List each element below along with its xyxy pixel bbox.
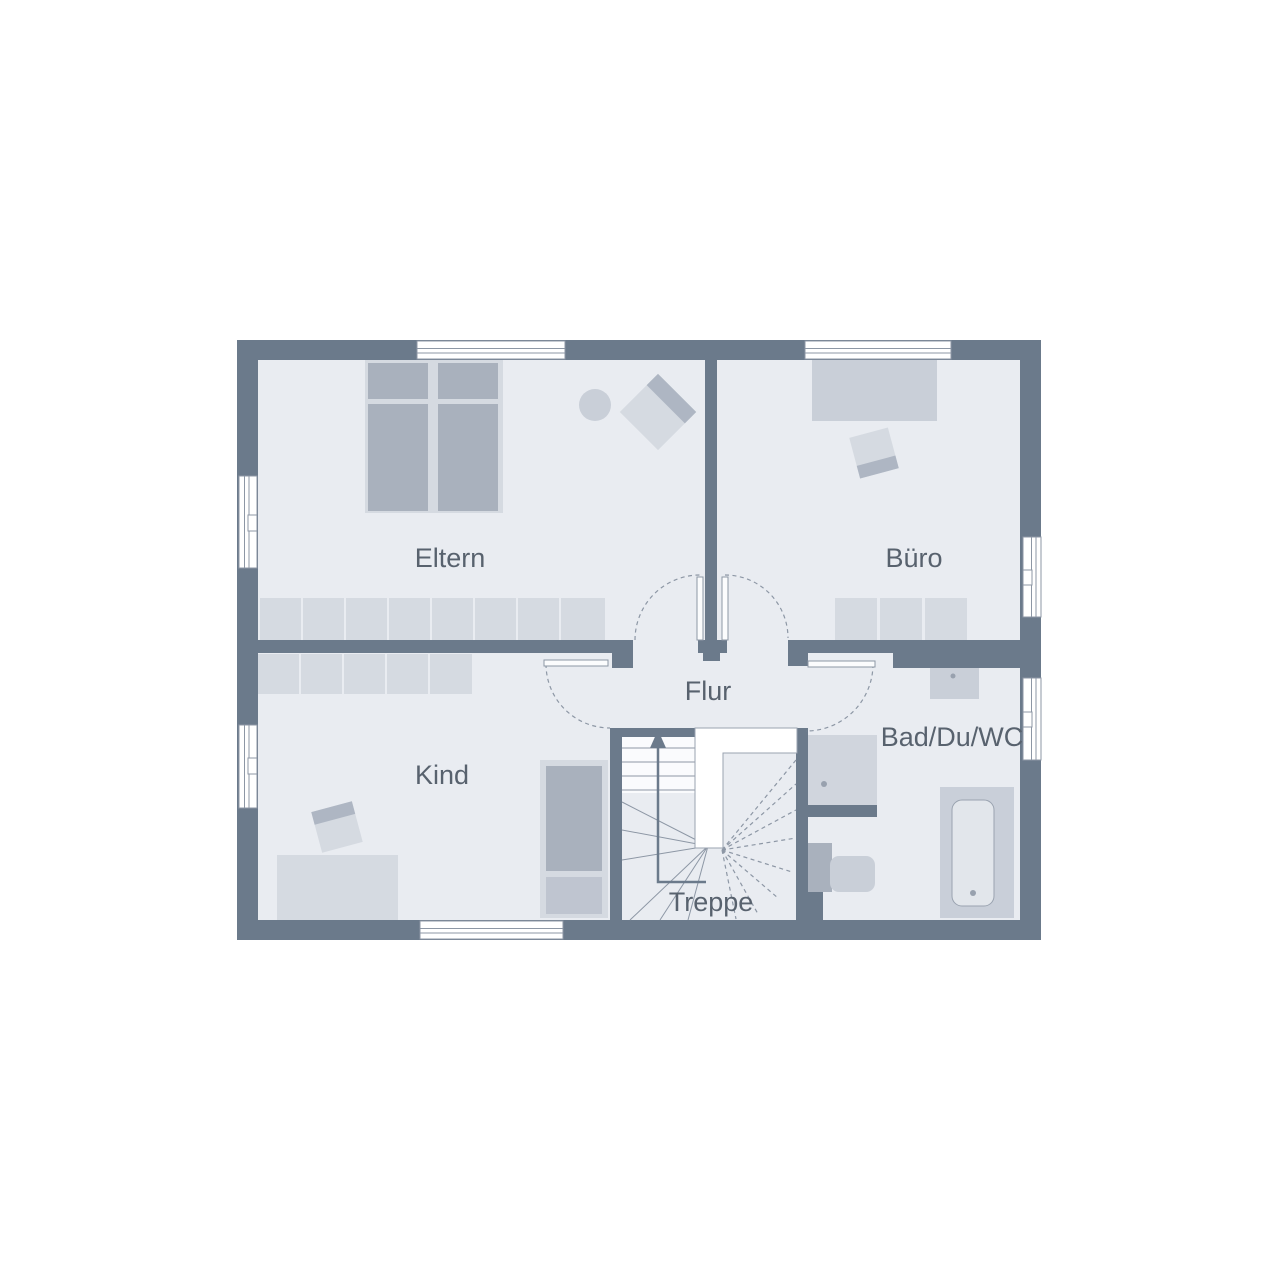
washbasin-drain — [951, 674, 956, 679]
window-top-buero — [805, 341, 951, 359]
shower — [808, 735, 877, 805]
shower-drain — [821, 781, 827, 787]
door-jamb-bad — [788, 653, 808, 666]
bed-mattress — [546, 766, 602, 871]
wardrobe-cell — [303, 598, 344, 640]
floor-plan: Eltern Büro Kind Flur Bad/Du/WC Treppe — [0, 0, 1280, 1280]
wall-shower-stub — [808, 805, 877, 817]
wall-eltern-kind — [258, 640, 633, 653]
washbasin — [930, 668, 979, 699]
wardrobe-cell — [430, 654, 472, 694]
wall-foot-tab — [703, 653, 720, 661]
window-glass — [805, 341, 951, 359]
stair-right-stub — [796, 892, 823, 920]
bed-mattress-right — [438, 404, 498, 511]
sideboard-buero — [835, 598, 967, 640]
shower-tray — [808, 735, 877, 805]
wardrobe-cell — [518, 598, 559, 640]
room-label-treppe: Treppe — [669, 887, 754, 917]
desk-buero — [812, 360, 937, 421]
bathtub — [940, 787, 1014, 918]
toilet-cistern — [808, 843, 832, 892]
window-top-eltern — [417, 341, 565, 359]
door-leaf-bad — [808, 661, 875, 667]
door-leaf-buero — [722, 577, 728, 640]
window-handle — [248, 758, 257, 774]
room-label-buero: Büro — [885, 543, 942, 573]
bathtub-drain — [970, 890, 976, 896]
bed-pillow-left — [368, 363, 428, 399]
wall-bad-thick — [893, 653, 1020, 668]
window-left-eltern — [239, 476, 257, 568]
wall-buero-bad — [788, 640, 1020, 653]
bed-kind — [540, 760, 608, 918]
door-leaf-eltern — [697, 577, 703, 640]
window-left-kind — [239, 725, 257, 808]
bed-mattress-left — [368, 404, 428, 511]
washbasin-body — [930, 668, 979, 699]
side-table — [579, 389, 611, 421]
wardrobe-cell — [258, 654, 299, 694]
stair-left-wall — [610, 728, 622, 920]
sideboard-cell — [835, 598, 877, 640]
room-label-kind: Kind — [415, 760, 469, 790]
wardrobe-kind — [258, 654, 472, 694]
wardrobe-cell — [346, 598, 387, 640]
wall-eltern-buero — [705, 360, 717, 640]
wardrobe-cell — [432, 598, 473, 640]
room-label-bad: Bad/Du/WC — [881, 722, 1024, 752]
room-label-flur: Flur — [685, 676, 732, 706]
window-right-bad — [1023, 678, 1041, 760]
bed-pillow-right — [438, 363, 498, 399]
window-handle — [248, 515, 257, 531]
wall-foot — [698, 640, 727, 653]
window-handle — [1023, 712, 1032, 727]
bed-foot — [546, 877, 602, 914]
floor-plan-page: Eltern Büro Kind Flur Bad/Du/WC Treppe — [0, 0, 1280, 1280]
window-right-buero — [1023, 537, 1041, 617]
toilet-bowl — [830, 856, 875, 892]
desk-kind — [277, 855, 398, 920]
stair-top-wall — [610, 728, 697, 737]
stair-right-wall — [796, 728, 808, 920]
room-label-eltern: Eltern — [415, 543, 486, 573]
sideboard-cell — [925, 598, 967, 640]
wardrobe-cell — [260, 598, 301, 640]
wardrobe-cell — [387, 654, 428, 694]
wardrobe-cell — [561, 598, 605, 640]
window-glass — [417, 341, 565, 359]
window-bottom-kind — [420, 921, 563, 939]
wardrobe-cell — [475, 598, 516, 640]
sideboard-cell — [880, 598, 922, 640]
door-leaf-kind — [544, 660, 608, 666]
wardrobe-cell — [389, 598, 430, 640]
window-handle — [1023, 570, 1032, 585]
door-jamb-kind — [612, 653, 633, 668]
wardrobe-eltern — [260, 598, 605, 640]
wardrobe-cell — [344, 654, 385, 694]
wardrobe-cell — [301, 654, 342, 694]
window-glass — [420, 921, 563, 939]
